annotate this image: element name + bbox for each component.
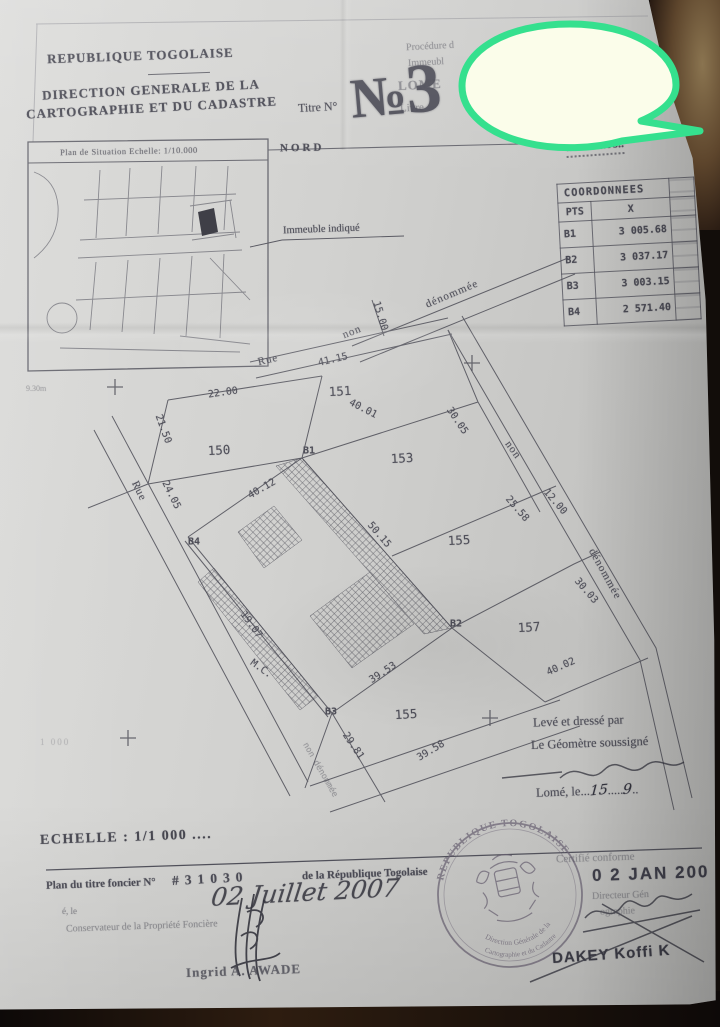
lome-date-line: Lomé, le...15.....9.. [536,781,639,801]
faint-scale-text: 1 000 [40,737,70,747]
plan-label-p_150: 150 [207,442,230,458]
photo-of-cadastral-document: { "scene":{ "bubble_fill":"#fbfdea", "bu… [0,0,720,1027]
coord-y-cutoff [671,215,697,242]
plan-label-p_153: 153 [390,450,413,466]
plan-label-p_157: 157 [517,619,540,635]
coord-x-value: 2 571.40 [596,294,676,324]
plan-label-m_21_50: 21.50 [153,413,174,445]
dots: .. [632,782,639,796]
plan-label-m_25_58: 25.58 [503,494,531,524]
dots: ..... [607,783,623,798]
coord-pt: B3 [562,272,596,300]
plan-label-m_40_12: 40.12 [246,477,278,502]
plan-label-m_29_81: 29.81 [340,730,366,761]
coord-y-cutoff [673,267,699,294]
le-label: é, le [62,906,77,916]
plan-label-m_12_00: 12.00 [541,487,569,517]
plan-label-rue_top: Rue [257,352,280,368]
plan-label-m_41_15: 41.15 [317,351,349,368]
plan-label-m_39_53: 39.53 [367,660,398,686]
coord-y-cutoff [672,241,698,268]
plan-label-m_30_03: 30.03 [572,576,600,606]
plan-label-b3: B3 [325,707,337,718]
plan-label-mc: M.C. [248,657,274,680]
date-stamp-jan: 0 2 JAN 200 [592,862,710,886]
lome-le-label: Lomé, le [536,784,581,800]
coord-col-pts: PTS [558,201,592,222]
coord-pt: B4 [563,298,597,326]
leve-dresse-line1: Levé et dressé par [533,712,624,730]
plan-label-m_30_05: 30.05 [444,405,470,436]
plan-label-p_151: 151 [328,383,351,399]
plan-label-non_right: non [502,439,523,462]
plan-label-m_50_15: 50.15 [365,520,393,550]
plan-label-m_24_05: 24.05 [159,479,182,511]
plan-label-m_40_01: 40.01 [347,397,379,420]
plan-label-rue_left: Rue [129,479,149,503]
plan-label-m_22_00: 22.00 [207,385,238,400]
plan-label-p_155: 155 [447,532,470,548]
handwritten-day: 15 [589,782,608,800]
plan-label-m_39_58: 39.58 [415,739,446,764]
plan-label-b4: B4 [188,537,200,548]
plan-label-m_40_02: 40.02 [545,656,577,678]
directeur-label: Directeur Gén [592,889,649,902]
coord-y-cutoff [675,293,701,320]
plan-label-non_top: non [341,323,364,341]
plan-label-m_15_00: 15.00 [370,300,389,332]
document-paper: REPUBLIQUE TOGOLAISE Direction Générale … [0,0,720,1027]
plan-label-p_155b: 155 [394,706,417,722]
plan-label-denommee_top: dénommée [424,277,480,310]
ographie-fragment: ographie [600,905,635,917]
coord-table-cutoff-column [669,177,695,197]
plan-label-m_19_07: 19.07 [238,610,265,641]
plan-label-b2: B2 [450,619,462,630]
plan-label-non_den_bottom: non dénommée [300,741,339,799]
coord-pt: B1 [559,220,593,248]
coord-pt: B2 [560,246,594,274]
plan-label-b1: B1 [303,446,315,457]
coordinates-table: COORDONNEES PTS X B13 005.68B23 037.17B3… [556,176,701,326]
handwritten-month: 9 [623,781,633,798]
